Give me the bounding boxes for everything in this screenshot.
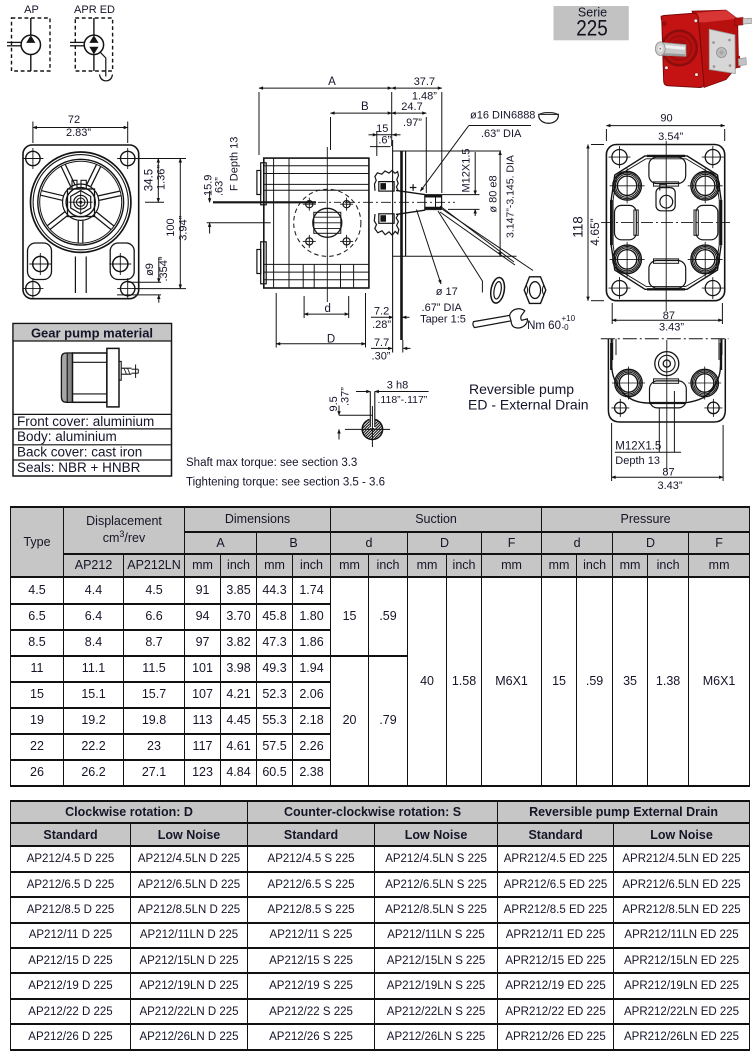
svg-text:34.5: 34.5 [144,169,156,191]
svg-text:.30”: .30” [372,350,391,362]
svg-text:.63” DIA: .63” DIA [481,128,522,140]
svg-text:3.43”: 3.43” [657,480,682,492]
svg-text:ED - External Drain: ED - External Drain [468,396,589,412]
svg-text:24.7: 24.7 [401,101,422,113]
svg-text:.118”-.117”: .118”-.117” [378,394,428,406]
svg-text:B: B [361,101,369,113]
svg-text:3.43”: 3.43” [659,322,684,334]
svg-text:Seals: NBR + HNBR: Seals: NBR + HNBR [17,460,141,475]
svg-text:M12X1.5: M12X1.5 [615,441,661,453]
svg-text:Gear pump material: Gear pump material [31,325,153,340]
svg-text:72: 72 [68,114,80,126]
svg-text:9.5: 9.5 [328,396,340,411]
svg-text:37.7: 37.7 [414,76,435,88]
svg-text:.67” DIA: .67” DIA [422,302,463,314]
svg-text:.97”: .97” [403,117,422,129]
svg-text:1.36”: 1.36” [156,165,168,190]
svg-text:3.54”: 3.54” [658,131,683,143]
svg-text:.354”: .354” [158,256,170,281]
svg-text:Nm 60: Nm 60 [527,320,561,332]
svg-text:2.83”: 2.83” [66,127,91,139]
svg-text:Taper 1:5: Taper 1:5 [420,313,466,325]
svg-text:Body: aluminium: Body: aluminium [17,429,117,444]
svg-text:15: 15 [376,123,388,135]
svg-text:225: 225 [576,15,608,40]
svg-text:118: 118 [571,216,586,238]
svg-text:.6”: .6” [378,134,391,146]
svg-text:3.94”: 3.94” [178,215,190,240]
svg-text:ø 80 e8: ø 80 e8 [488,175,500,212]
svg-text:90: 90 [660,113,672,125]
svg-text:Tightening torque: see section: Tightening torque: see section 3.5 - 3.6 [186,477,385,489]
svg-text:APR ED: APR ED [74,4,115,16]
svg-text:-0: -0 [562,323,570,332]
svg-text:7.2: 7.2 [374,305,389,317]
svg-text:d: d [324,303,330,315]
svg-text:.28”: .28” [372,319,391,331]
svg-text:4.65”: 4.65” [588,218,602,245]
svg-text:Depth 13: Depth 13 [615,455,660,467]
svg-text:Back cover: cast iron: Back cover: cast iron [17,444,142,459]
svg-text:100: 100 [165,218,177,236]
svg-text:+10: +10 [562,314,576,323]
svg-text:.63”: .63” [213,177,225,196]
svg-text:AP: AP [24,4,39,16]
svg-text:ø16 DIN6888: ø16 DIN6888 [470,109,535,121]
svg-text:F Depth 13: F Depth 13 [228,137,240,191]
svg-text:3.147”-3.145. DIA: 3.147”-3.145. DIA [505,155,517,238]
svg-text:ø9: ø9 [144,263,156,276]
svg-text:3 h8: 3 h8 [387,379,408,391]
svg-text:Reversible pump: Reversible pump [469,381,574,397]
svg-text:Shaft max torque: see section: Shaft max torque: see section 3.3 [186,457,357,469]
svg-text:A: A [328,76,336,88]
svg-text:ø 17: ø 17 [436,286,458,298]
svg-text:.37”: .37” [340,387,352,406]
svg-text:7.7: 7.7 [374,337,389,349]
svg-text:M12X1.5: M12X1.5 [461,148,473,192]
svg-text:Front cover: aluminium: Front cover: aluminium [17,414,154,429]
svg-text:87: 87 [662,466,674,478]
